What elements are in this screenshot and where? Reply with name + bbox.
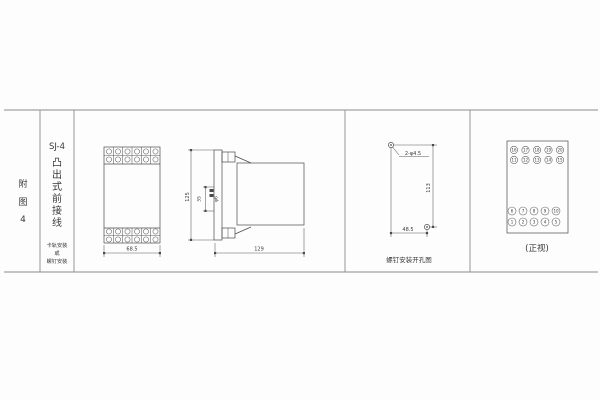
terminal-number: 9 [544,209,547,214]
side-view: 125 35 φ6 [185,149,305,257]
holes-callout: 2-φ4.5 [393,147,430,157]
terminal-number: 17 [523,148,529,153]
terminal-view: 16 17 18 19 20 11 12 13 14 15 6 7 8 9 10… [507,141,568,254]
title-block: 附 图 4 SJ-4 凸 出 式 前 接 线 卡轨安装 或 螺钉安装 [18,142,67,265]
terminal-number: 3 [533,220,536,225]
mounting-tabs [222,152,235,238]
drill-view: 2-φ4.5 113 48.5 螺钉安装开孔图 [386,142,437,264]
mount-note-line: 或 [54,249,59,257]
pitch-dim-label: 35 [197,196,203,202]
drawing-sheet: 附 图 4 SJ-4 凸 出 式 前 接 线 卡轨安装 或 螺钉安装 [0,0,600,400]
height-dim-label: 125 [185,192,191,202]
vertical-dim-label: 113 [426,183,432,193]
type-label-char: 式 [52,180,62,193]
terminal-number: 15 [557,158,563,163]
table-grid [4,110,598,272]
type-label-char: 凸 [52,157,62,169]
depth-dim-label: 129 [254,247,264,253]
stud-dim-label: φ6 [214,196,220,202]
bottom-chamfer [235,227,251,234]
figure-label-char: 4 [20,215,26,225]
type-label-char: 线 [52,216,62,229]
terminal-number: 10 [553,209,559,214]
drawing-canvas: 附 图 4 SJ-4 凸 出 式 前 接 线 卡轨安装 或 螺钉安装 [0,0,600,400]
mounting-hole-top [388,142,393,147]
figure-label-char: 附 [18,178,27,190]
mounting-hole-bottom [424,224,429,229]
terminal-number: 16 [511,148,517,153]
terminal-number: 13 [534,158,540,163]
holes-label: 2-φ4.5 [405,151,421,157]
mount-note-line: 卡轨安装 [47,241,68,249]
terminal-number: 12 [523,158,529,163]
front-flange [214,150,222,240]
width-dim-label: 68.5 [126,247,137,253]
terminal-studs [210,189,214,197]
terminal-number: 8 [533,209,536,214]
figure-label-char: 图 [18,197,27,208]
terminal-number: 7 [522,209,525,214]
drill-view-caption: 螺钉安装开孔图 [386,255,432,264]
terminal-strip-dividers [113,147,150,243]
front-view: 68.5 [103,147,161,257]
width-dimension: 68.5 [103,245,161,257]
depth-dimension: 129 [214,228,305,257]
horizontal-dim-label: 48.5 [402,227,413,233]
terminal-number: 6 [511,209,514,214]
terminal-circles: 16 17 18 19 20 11 12 13 14 15 6 7 8 9 10… [508,146,564,226]
mount-note-line: 螺钉安装 [47,257,68,265]
model-label: SJ-4 [49,142,65,152]
stud-pitch-dimension: 35 φ6 [197,186,220,212]
top-chamfer [235,156,251,163]
terminal-view-caption: (正视) [525,243,549,254]
terminal-number: 1 [511,220,514,225]
terminal-number: 19 [546,148,552,153]
terminal-number: 2 [522,220,525,225]
relay-body [237,163,304,225]
terminal-number: 18 [534,148,540,153]
terminal-number: 14 [546,158,552,163]
terminal-number: 11 [511,158,517,163]
type-label-char: 接 [52,204,62,217]
type-label-char: 前 [52,192,62,205]
terminal-number: 20 [557,148,563,153]
horizontal-dimension: 48.5 [390,148,428,237]
terminal-number: 5 [555,220,558,225]
type-label-char: 出 [52,168,62,181]
terminal-number: 4 [544,220,547,225]
